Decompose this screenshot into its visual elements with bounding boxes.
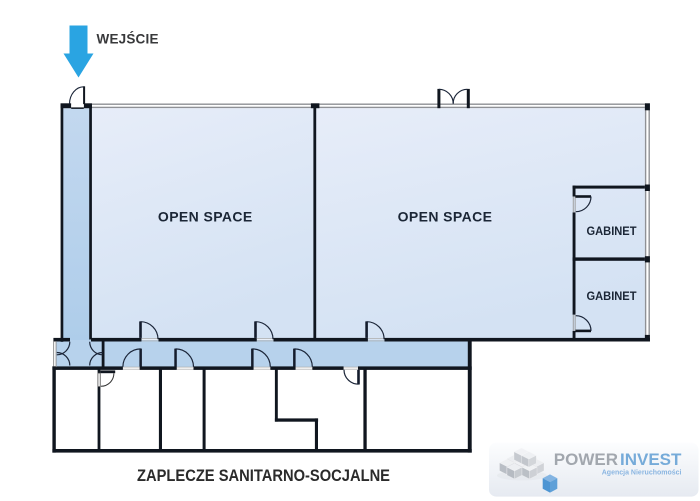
svg-text:GABINET: GABINET (587, 224, 638, 238)
svg-text:WEJŚCIE: WEJŚCIE (97, 32, 159, 47)
svg-text:POWER: POWER (554, 450, 618, 469)
svg-text:ZAPLECZE SANITARNO-SOCJALNE: ZAPLECZE SANITARNO-SOCJALNE (137, 467, 390, 485)
svg-text:OPEN SPACE: OPEN SPACE (398, 209, 493, 225)
svg-text:Agencja Nieruchomości: Agencja Nieruchomości (602, 469, 682, 476)
svg-text:GABINET: GABINET (587, 289, 638, 303)
svg-text:INVEST: INVEST (620, 450, 682, 469)
svg-text:OPEN SPACE: OPEN SPACE (158, 209, 253, 225)
